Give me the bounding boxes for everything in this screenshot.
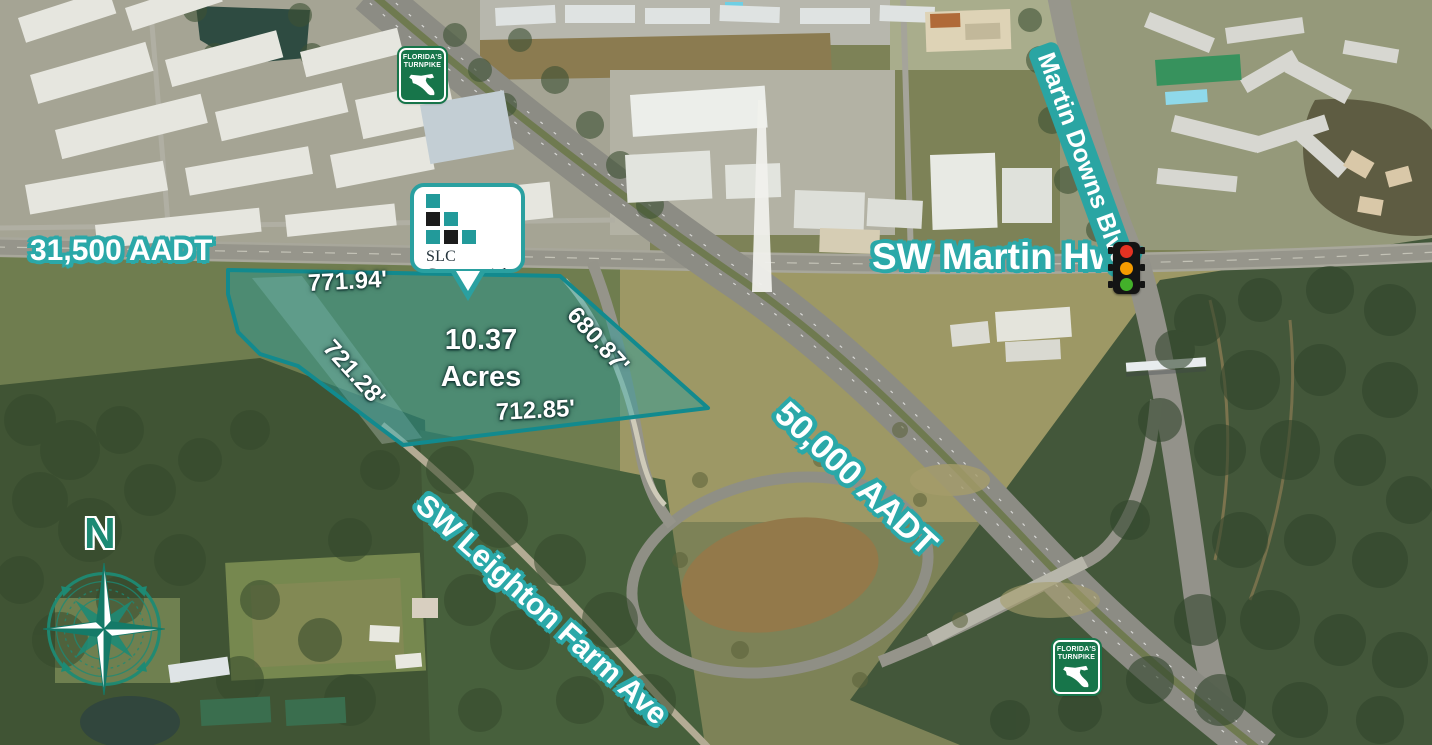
red-light [1120,245,1133,258]
florida-turnpike-shield-icon: FLORIDA'S TURNPIKE [399,48,446,102]
compass-rose-icon [38,563,170,695]
parcel-dim-south: 712.85' [495,397,575,425]
logo-squares-icon [426,194,521,244]
broker-location-pin-icon: SLC Commercial Realty Associates [410,183,525,273]
traffic-light-icon [1113,242,1140,294]
amber-light [1120,262,1133,275]
florida-silhouette-icon [407,72,439,96]
parcel-dim-north: 771.94' [307,268,387,296]
parcel-acreage-label: 10.37 Acres [428,322,534,396]
broker-logo: SLC Commercial Realty Associates [410,183,525,273]
traffic-count-31500: 31,500 AADT [30,236,212,266]
green-light [1120,278,1133,291]
aerial-listing-flyer: 31,500 AADT 50,000 AADT SW Martin Hwy Ma… [0,0,1432,745]
aerial-photo-background [0,0,1432,745]
compass-north-label: N [84,512,116,556]
parcel-acreage-unit: Acres [428,359,534,396]
florida-turnpike-shield-icon: FLORIDA'S TURNPIKE [1053,640,1100,694]
broker-name: SLC Commercial [426,248,521,273]
florida-silhouette-icon [1061,664,1093,688]
parcel-acreage-value: 10.37 [428,322,534,359]
